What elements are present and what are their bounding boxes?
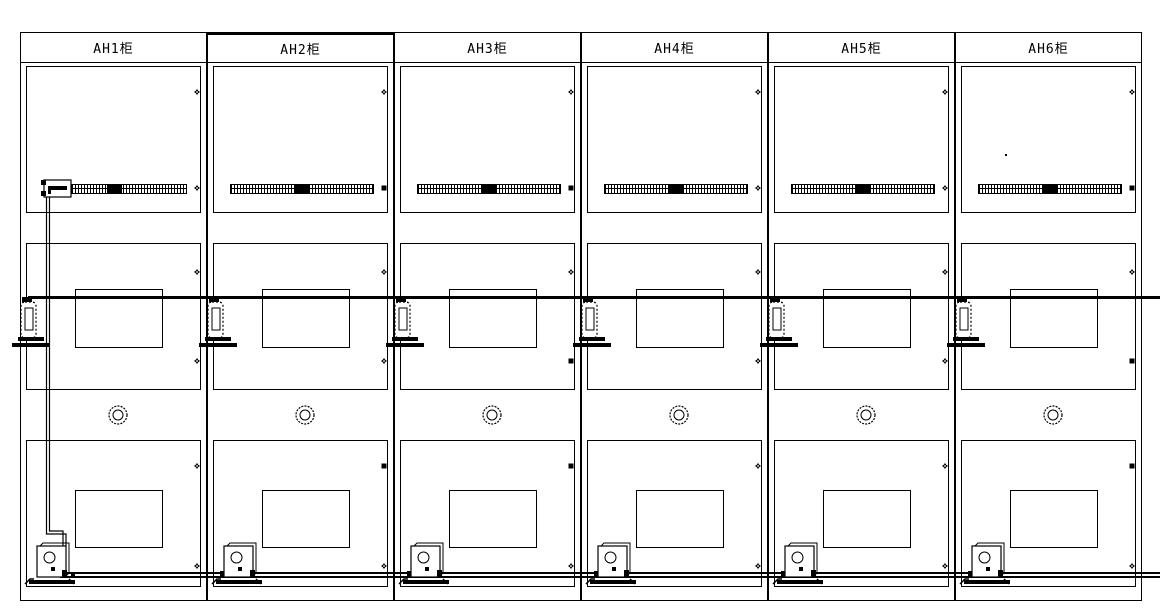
latch-cap <box>957 297 967 302</box>
square-plug-icon <box>569 359 574 364</box>
latch-base-lower <box>386 343 424 347</box>
latch-base-upper <box>953 337 979 341</box>
bus-clamp <box>250 570 255 578</box>
door-knob-outer <box>857 406 875 424</box>
cad-drawing-cabinet-elevation: AH1柜AH2柜AH3柜AH4柜AH5柜AH6柜 <box>0 0 1160 614</box>
latch-base-lower <box>947 343 985 347</box>
actuator-box <box>37 546 66 577</box>
latch-body <box>395 302 410 338</box>
bus-clamp <box>407 571 411 577</box>
actuator-box <box>785 546 814 577</box>
square-plug-icon <box>382 464 387 469</box>
square-plug-icon <box>569 464 574 469</box>
bus-clamp <box>968 571 972 577</box>
latch-body <box>956 302 971 338</box>
square-plug-icon <box>382 186 387 191</box>
actuator-box <box>972 546 1001 577</box>
latch-body <box>769 302 784 338</box>
door-knob-inner <box>861 410 871 420</box>
latch-base-upper <box>392 337 418 341</box>
actuator-box <box>411 546 440 577</box>
door-knob-outer <box>296 406 314 424</box>
latch-base-lower <box>760 343 798 347</box>
actuator-base-plate <box>964 580 1010 584</box>
latch-body <box>21 302 36 338</box>
actuator-box <box>598 546 627 577</box>
square-plug-icon <box>1130 464 1135 469</box>
actuator-nub <box>612 567 616 571</box>
actuator-base-plate <box>403 580 449 584</box>
latch-base-upper <box>18 337 44 341</box>
latch-base-upper <box>766 337 792 341</box>
bus-clamp <box>62 570 67 578</box>
square-plug-icon <box>569 186 574 191</box>
connector-nub <box>41 191 46 196</box>
actuator-nub <box>238 567 242 571</box>
latch-cap <box>583 297 593 302</box>
drop-wire-inner <box>50 197 64 546</box>
actuator-base-plate <box>590 580 636 584</box>
latch-base-upper <box>205 337 231 341</box>
bus-clamp <box>624 570 629 578</box>
actuator-box <box>224 546 253 577</box>
actuator-base-plate <box>777 580 823 584</box>
square-plug-icon <box>1130 186 1135 191</box>
actuator-base-plate <box>216 580 262 584</box>
door-knob-inner <box>674 410 684 420</box>
bus-clamp <box>998 570 1003 578</box>
square-plug-icon <box>1130 359 1135 364</box>
door-knob-outer <box>109 406 127 424</box>
bus-clamp <box>781 571 785 577</box>
door-knob-outer <box>1044 406 1062 424</box>
door-knob-inner <box>113 410 123 420</box>
bus-clamp <box>594 571 598 577</box>
latch-cap <box>22 297 32 302</box>
actuator-nub <box>799 567 803 571</box>
bus-clamp <box>811 570 816 578</box>
latch-base-lower <box>573 343 611 347</box>
latch-body <box>582 302 597 338</box>
latch-base-lower <box>199 343 237 347</box>
latch-base-upper <box>579 337 605 341</box>
door-knob-outer <box>483 406 501 424</box>
actuator-nub <box>51 567 55 571</box>
actuator-base-plate <box>29 580 75 584</box>
latch-cap <box>209 297 219 302</box>
door-knob-outer <box>670 406 688 424</box>
connector-nub <box>41 180 46 185</box>
door-knob-inner <box>1048 410 1058 420</box>
latch-cap <box>770 297 780 302</box>
connector-bar-leg <box>48 186 51 194</box>
latch-base-lower <box>12 343 50 347</box>
bus-clamp <box>437 570 442 578</box>
bus-clamp <box>220 571 224 577</box>
door-knob-inner <box>300 410 310 420</box>
device-overlay <box>0 0 1160 614</box>
latch-body <box>208 302 223 338</box>
stray-dot <box>1005 154 1007 156</box>
actuator-nub <box>425 567 429 571</box>
latch-cap <box>396 297 406 302</box>
bus-clamp <box>71 572 75 578</box>
door-knob-inner <box>487 410 497 420</box>
actuator-nub <box>986 567 990 571</box>
